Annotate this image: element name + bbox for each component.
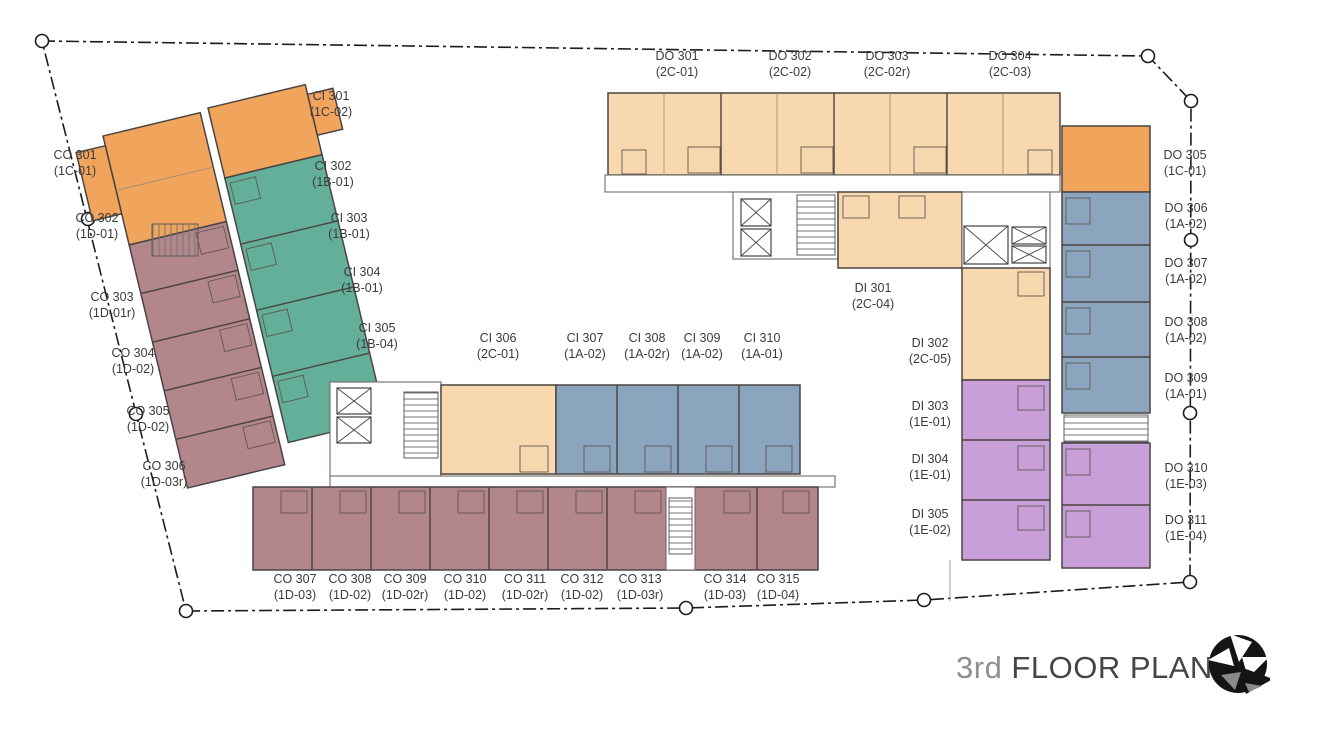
- logo-icon: [1206, 632, 1270, 696]
- wing-right: [1062, 126, 1150, 568]
- wing-inner-right: [838, 192, 1050, 560]
- corridor-top: [605, 175, 1060, 192]
- stairs-right: [1064, 415, 1148, 442]
- core-central: [733, 192, 838, 259]
- floor-number: 3rd: [956, 650, 1002, 685]
- page-title: 3rd FLOOR PLAN: [956, 650, 1213, 686]
- wing-top: [605, 93, 1060, 192]
- stairs-middle: [404, 392, 438, 458]
- wing-bottom: [253, 487, 818, 570]
- corridor-middle: [330, 476, 835, 487]
- stairs-bottom: [669, 498, 692, 554]
- floor-plan-text: FLOOR PLAN: [1002, 650, 1213, 685]
- floor-plan-drawing: [0, 0, 1342, 754]
- floor-plan-stage: DO 301(2C-01)DO 302(2C-02)DO 303(2C-02r)…: [0, 0, 1342, 754]
- stairs-central: [797, 195, 835, 255]
- wing-middle: [330, 382, 835, 487]
- stairs-left: [152, 224, 198, 256]
